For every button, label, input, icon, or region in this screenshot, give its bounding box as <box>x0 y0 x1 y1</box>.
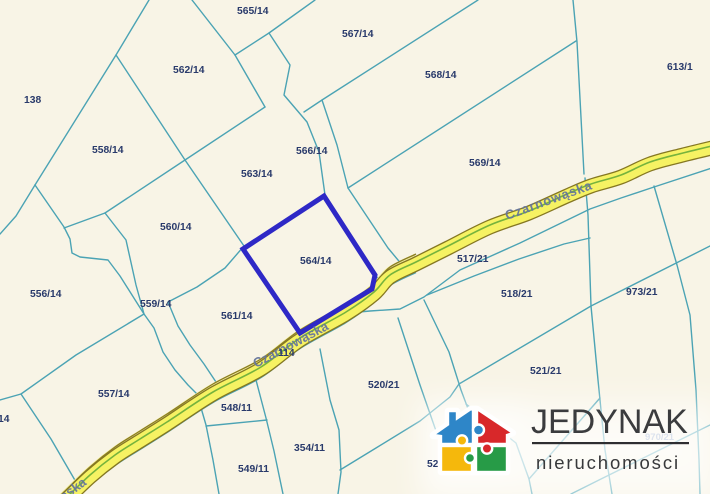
svg-text:138: 138 <box>24 95 41 106</box>
svg-text:559/14: 559/14 <box>140 299 172 310</box>
svg-text:564/14: 564/14 <box>300 256 332 267</box>
svg-text:518/21: 518/21 <box>501 289 533 300</box>
svg-text:521/21: 521/21 <box>530 366 562 377</box>
svg-text:563/14: 563/14 <box>241 169 273 180</box>
svg-text:557/14: 557/14 <box>98 389 130 400</box>
svg-text:517/21: 517/21 <box>457 254 489 265</box>
svg-text:562/14: 562/14 <box>173 65 205 76</box>
svg-text:JEDYNAK: JEDYNAK <box>531 403 688 441</box>
svg-text:565/14: 565/14 <box>237 6 269 17</box>
svg-text:561/14: 561/14 <box>221 311 253 322</box>
svg-text:566/14: 566/14 <box>296 146 328 157</box>
svg-text:567/14: 567/14 <box>342 29 374 40</box>
svg-text:14: 14 <box>0 414 10 425</box>
svg-text:114: 114 <box>278 348 295 359</box>
svg-text:613/1: 613/1 <box>667 62 693 73</box>
svg-text:569/14: 569/14 <box>469 158 501 169</box>
svg-text:560/14: 560/14 <box>160 222 192 233</box>
svg-text:nieruchomości: nieruchomości <box>536 452 680 473</box>
svg-text:973/21: 973/21 <box>626 287 658 298</box>
svg-text:548/11: 548/11 <box>221 403 252 414</box>
svg-text:568/14: 568/14 <box>425 70 457 81</box>
svg-text:556/14: 556/14 <box>30 289 62 300</box>
svg-text:52: 52 <box>427 459 439 470</box>
svg-text:520/21: 520/21 <box>368 380 400 391</box>
svg-text:549/11: 549/11 <box>238 464 269 475</box>
svg-text:558/14: 558/14 <box>92 145 124 156</box>
svg-text:354/11: 354/11 <box>294 443 325 454</box>
